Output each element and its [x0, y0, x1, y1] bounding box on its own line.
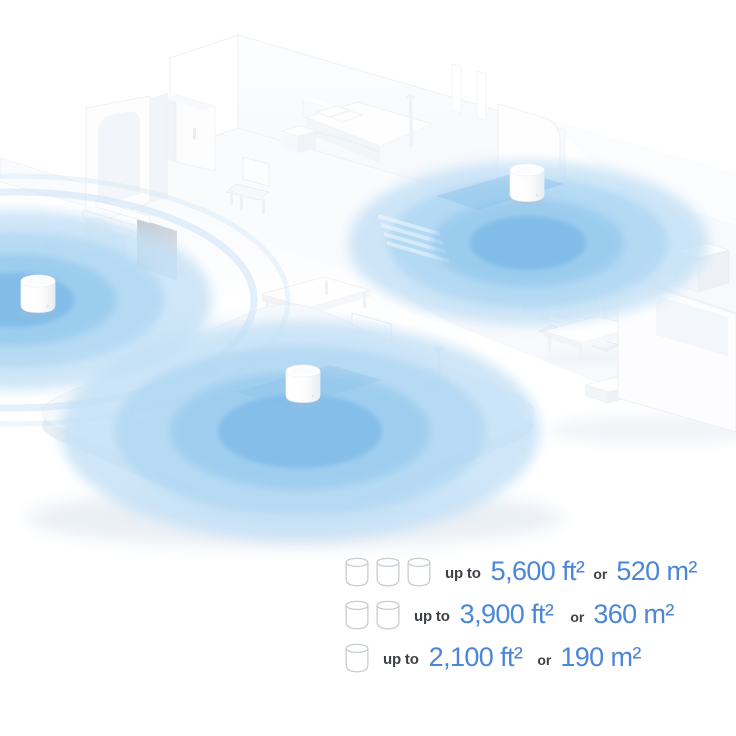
imperial-area-value: 3,900 ft²: [460, 601, 554, 628]
coverage-row-one-pack: up to 2,100 ft² or 190 m²: [344, 642, 697, 674]
deco-unit-icon: [344, 599, 370, 631]
or-label: or: [537, 653, 551, 667]
deco-unit-icon: [375, 556, 401, 588]
metric-area-value: 360 m²: [593, 601, 673, 628]
deco-unit-icon: [344, 556, 370, 588]
up-to-label: up to: [414, 609, 450, 624]
wardrobe: [165, 95, 215, 171]
deco-unit-icon: [344, 642, 370, 674]
or-label: or: [570, 610, 584, 624]
deco-unit-icons: [344, 599, 401, 631]
up-to-label: up to: [383, 652, 419, 667]
deco-unit-icons: [344, 556, 432, 588]
imperial-area-value: 5,600 ft²: [491, 558, 585, 585]
deco-unit-icons: [344, 642, 370, 674]
wifi-coverage-bottom-center: [60, 321, 540, 541]
coverage-legend: up to 5,600 ft² or 520 m² up to 3,900 ft…: [344, 556, 697, 685]
deco-unit-icon: [406, 556, 432, 588]
metric-area-value: 520 m²: [616, 558, 696, 585]
deco-unit-left: [20, 275, 56, 317]
metric-area-value: 190 m²: [560, 644, 640, 671]
coverage-row-three-pack: up to 5,600 ft² or 520 m²: [344, 556, 697, 588]
deco-unit-top-right: [509, 164, 545, 206]
coverage-row-two-pack: up to 3,900 ft² or 360 m²: [344, 599, 697, 631]
nightstand: [282, 126, 316, 153]
up-to-label: up to: [445, 566, 481, 581]
or-label: or: [593, 567, 607, 581]
product-coverage-image: up to 5,600 ft² or 520 m² up to 3,900 ft…: [0, 0, 736, 736]
imperial-area-value: 2,100 ft²: [429, 644, 523, 671]
deco-unit-icon: [375, 599, 401, 631]
deco-unit-bottom-center: [285, 365, 321, 407]
